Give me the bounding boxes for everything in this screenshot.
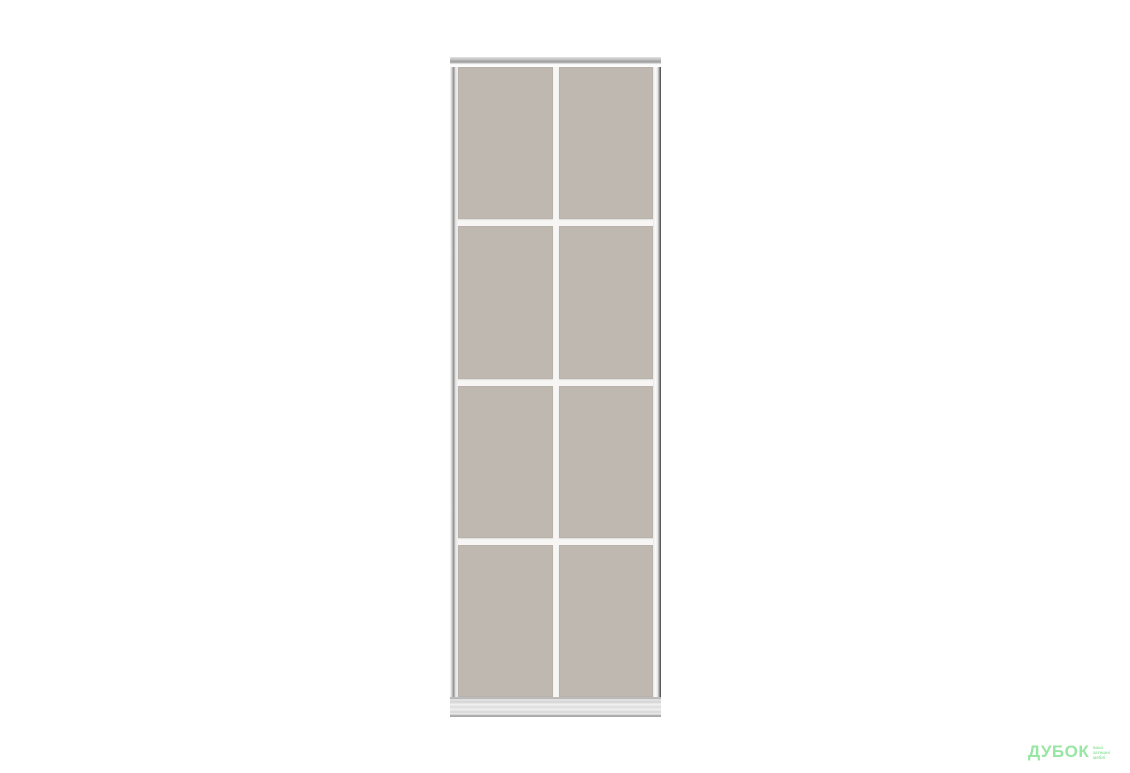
brand-tagline-line: меблі: [1093, 755, 1110, 760]
door-panel: [458, 545, 553, 697]
brand-tagline: ваші затишні меблі: [1093, 745, 1110, 760]
door-panel: [458, 226, 553, 378]
sliding-door: [450, 57, 661, 717]
door-panel: [559, 545, 654, 697]
brand-watermark: ДУБОК ваші затишні меблі: [1028, 743, 1124, 773]
door-body: [450, 67, 661, 697]
door-right-stile: [653, 67, 661, 697]
door-top-rail: [450, 57, 661, 67]
door-grid: [458, 67, 653, 697]
door-panel: [458, 386, 553, 538]
door-panel: [559, 226, 654, 378]
brand-logo-text: ДУБОК: [1028, 743, 1089, 762]
door-panel: [458, 67, 553, 219]
product-photo-canvas: ДУБОК ваші затишні меблі: [0, 0, 1130, 773]
door-panel: [559, 67, 654, 219]
door-panel: [559, 386, 654, 538]
door-left-stile: [450, 67, 458, 697]
door-bottom-rail: [450, 697, 661, 717]
